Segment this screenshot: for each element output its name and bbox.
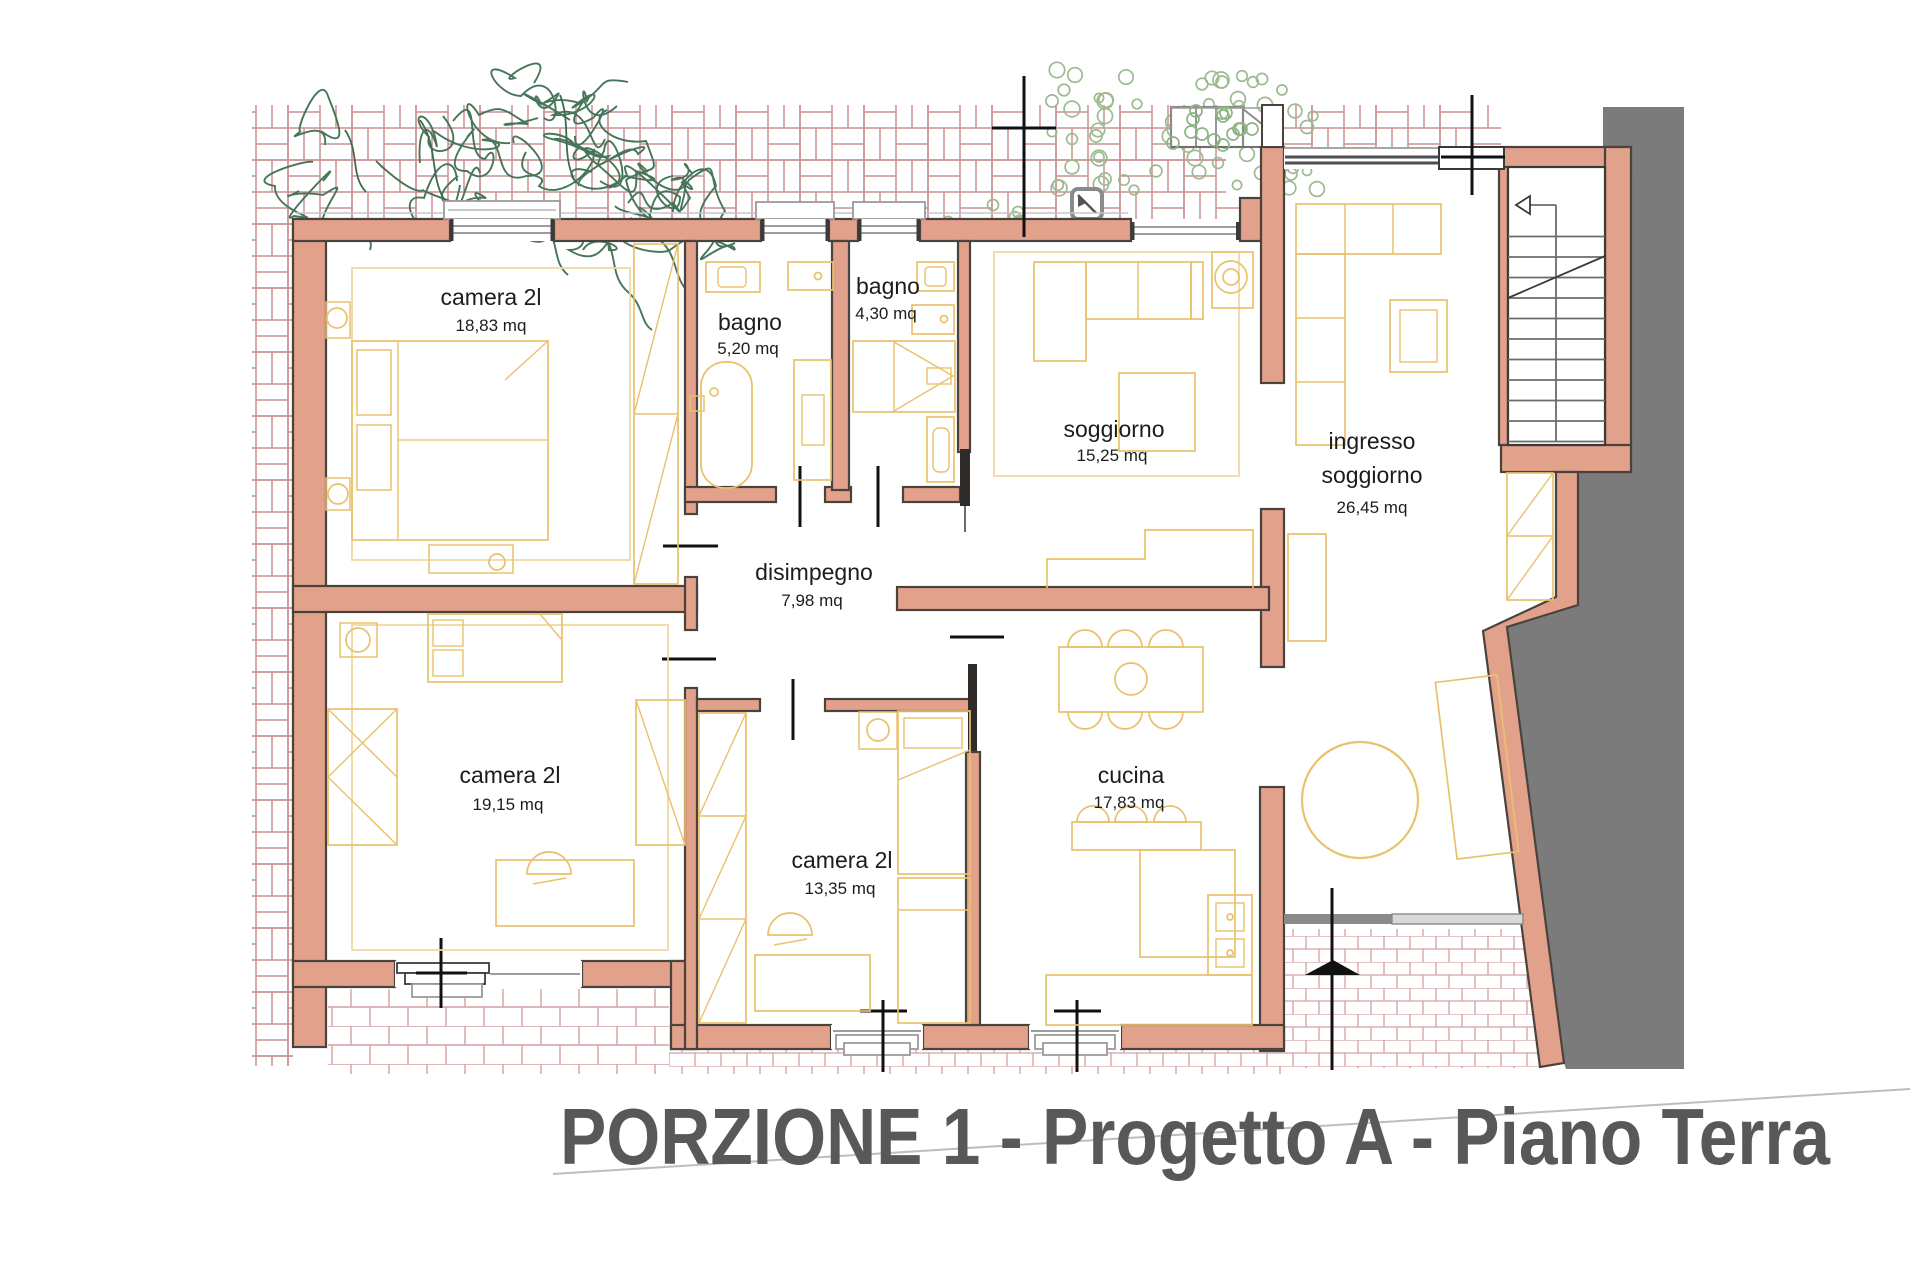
svg-text:bagno: bagno: [856, 273, 920, 299]
svg-text:soggiorno: soggiorno: [1063, 416, 1164, 442]
svg-text:7,98 mq: 7,98 mq: [781, 591, 842, 610]
svg-text:4,30 mq: 4,30 mq: [855, 304, 916, 323]
svg-text:PORZIONE 1 - Progetto A - Pian: PORZIONE 1 - Progetto A - Piano Terra: [560, 1092, 1830, 1181]
svg-text:13,35 mq: 13,35 mq: [805, 879, 876, 898]
svg-text:bagno: bagno: [718, 309, 782, 335]
svg-text:camera 2l: camera 2l: [460, 762, 561, 788]
svg-text:cucina: cucina: [1098, 762, 1165, 788]
svg-text:5,20 mq: 5,20 mq: [717, 339, 778, 358]
svg-text:soggiorno: soggiorno: [1321, 462, 1422, 488]
svg-text:17,83 mq: 17,83 mq: [1094, 793, 1165, 812]
svg-text:26,45 mq: 26,45 mq: [1337, 498, 1408, 517]
svg-text:camera 2l: camera 2l: [792, 847, 893, 873]
svg-text:camera 2l: camera 2l: [441, 284, 542, 310]
svg-text:disimpegno: disimpegno: [755, 559, 873, 585]
svg-text:15,25 mq: 15,25 mq: [1077, 446, 1148, 465]
svg-text:18,83 mq: 18,83 mq: [456, 316, 527, 335]
svg-text:19,15 mq: 19,15 mq: [473, 795, 544, 814]
svg-text:ingresso: ingresso: [1329, 428, 1416, 454]
